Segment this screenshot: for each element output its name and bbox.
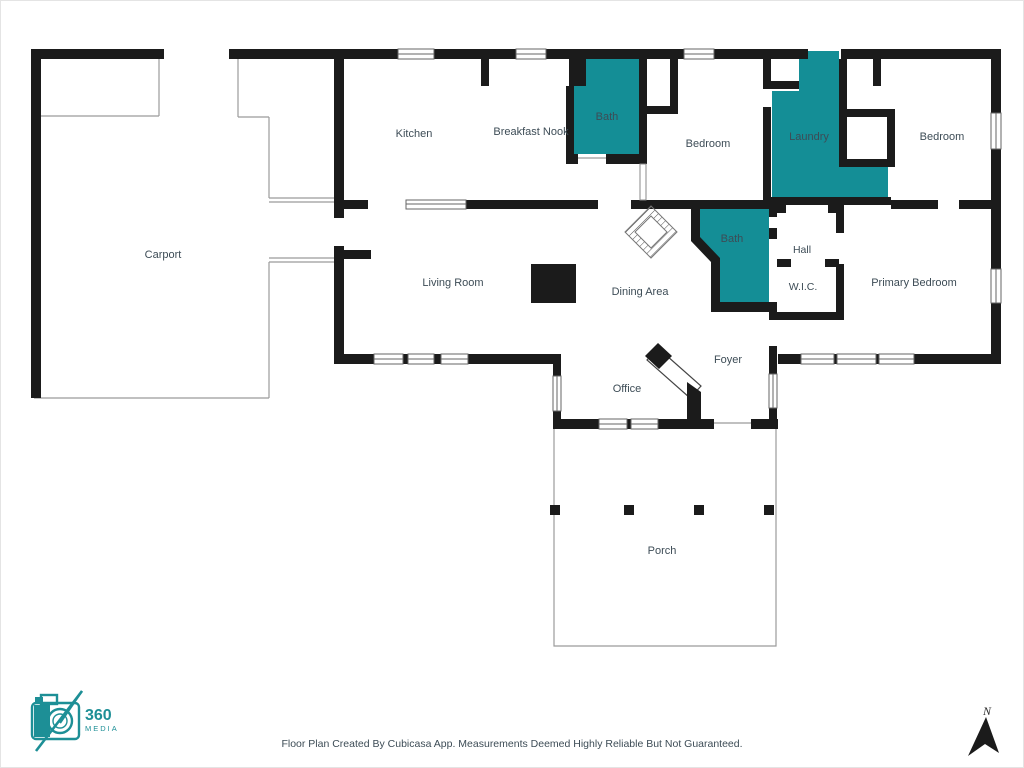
stove-icon bbox=[625, 206, 677, 258]
logo-name: MEDIA bbox=[85, 724, 119, 733]
north-label: N bbox=[982, 704, 992, 718]
porch-posts bbox=[550, 505, 774, 515]
floor-plan-page: Carport Kitchen Breakfast Nook Bath Bedr… bbox=[0, 0, 1024, 768]
room-label-foyer: Foyer bbox=[714, 354, 742, 366]
carport-outline bbox=[34, 59, 334, 398]
north-arrow-icon: N bbox=[968, 704, 999, 756]
room-label-bedroom-1: Bedroom bbox=[686, 138, 731, 150]
room-label-laundry: Laundry bbox=[789, 131, 829, 143]
camera-icon bbox=[32, 691, 82, 751]
floor-plan-canvas: Carport Kitchen Breakfast Nook Bath Bedr… bbox=[1, 1, 1023, 767]
room-label-dining-area: Dining Area bbox=[612, 286, 670, 298]
logo-360-media: 360 MEDIA bbox=[32, 691, 119, 751]
room-label-office: Office bbox=[613, 383, 642, 395]
room-label-bedroom-2: Bedroom bbox=[920, 131, 965, 143]
logo-number: 360 bbox=[85, 707, 112, 724]
windows-layer bbox=[374, 49, 1001, 429]
fireplace-icon bbox=[531, 264, 576, 303]
stairs-icon bbox=[645, 343, 701, 429]
room-label-carport: Carport bbox=[145, 249, 182, 261]
room-label-living-room: Living Room bbox=[422, 277, 483, 289]
room-label-breakfast-nook: Breakfast Nook bbox=[493, 126, 569, 138]
disclaimer-text: Floor Plan Created By Cubicasa App. Meas… bbox=[281, 738, 742, 750]
room-label-bath-1: Bath bbox=[596, 111, 619, 123]
room-label-hall: Hall bbox=[793, 244, 811, 256]
room-label-wic: W.I.C. bbox=[789, 281, 818, 293]
room-label-primary-bedroom: Primary Bedroom bbox=[871, 277, 957, 289]
room-label-porch: Porch bbox=[648, 545, 677, 557]
porch-outline bbox=[554, 423, 776, 646]
room-label-kitchen: Kitchen bbox=[396, 128, 433, 140]
room-label-bath-2: Bath bbox=[721, 233, 744, 245]
walls-layer bbox=[31, 49, 1001, 429]
